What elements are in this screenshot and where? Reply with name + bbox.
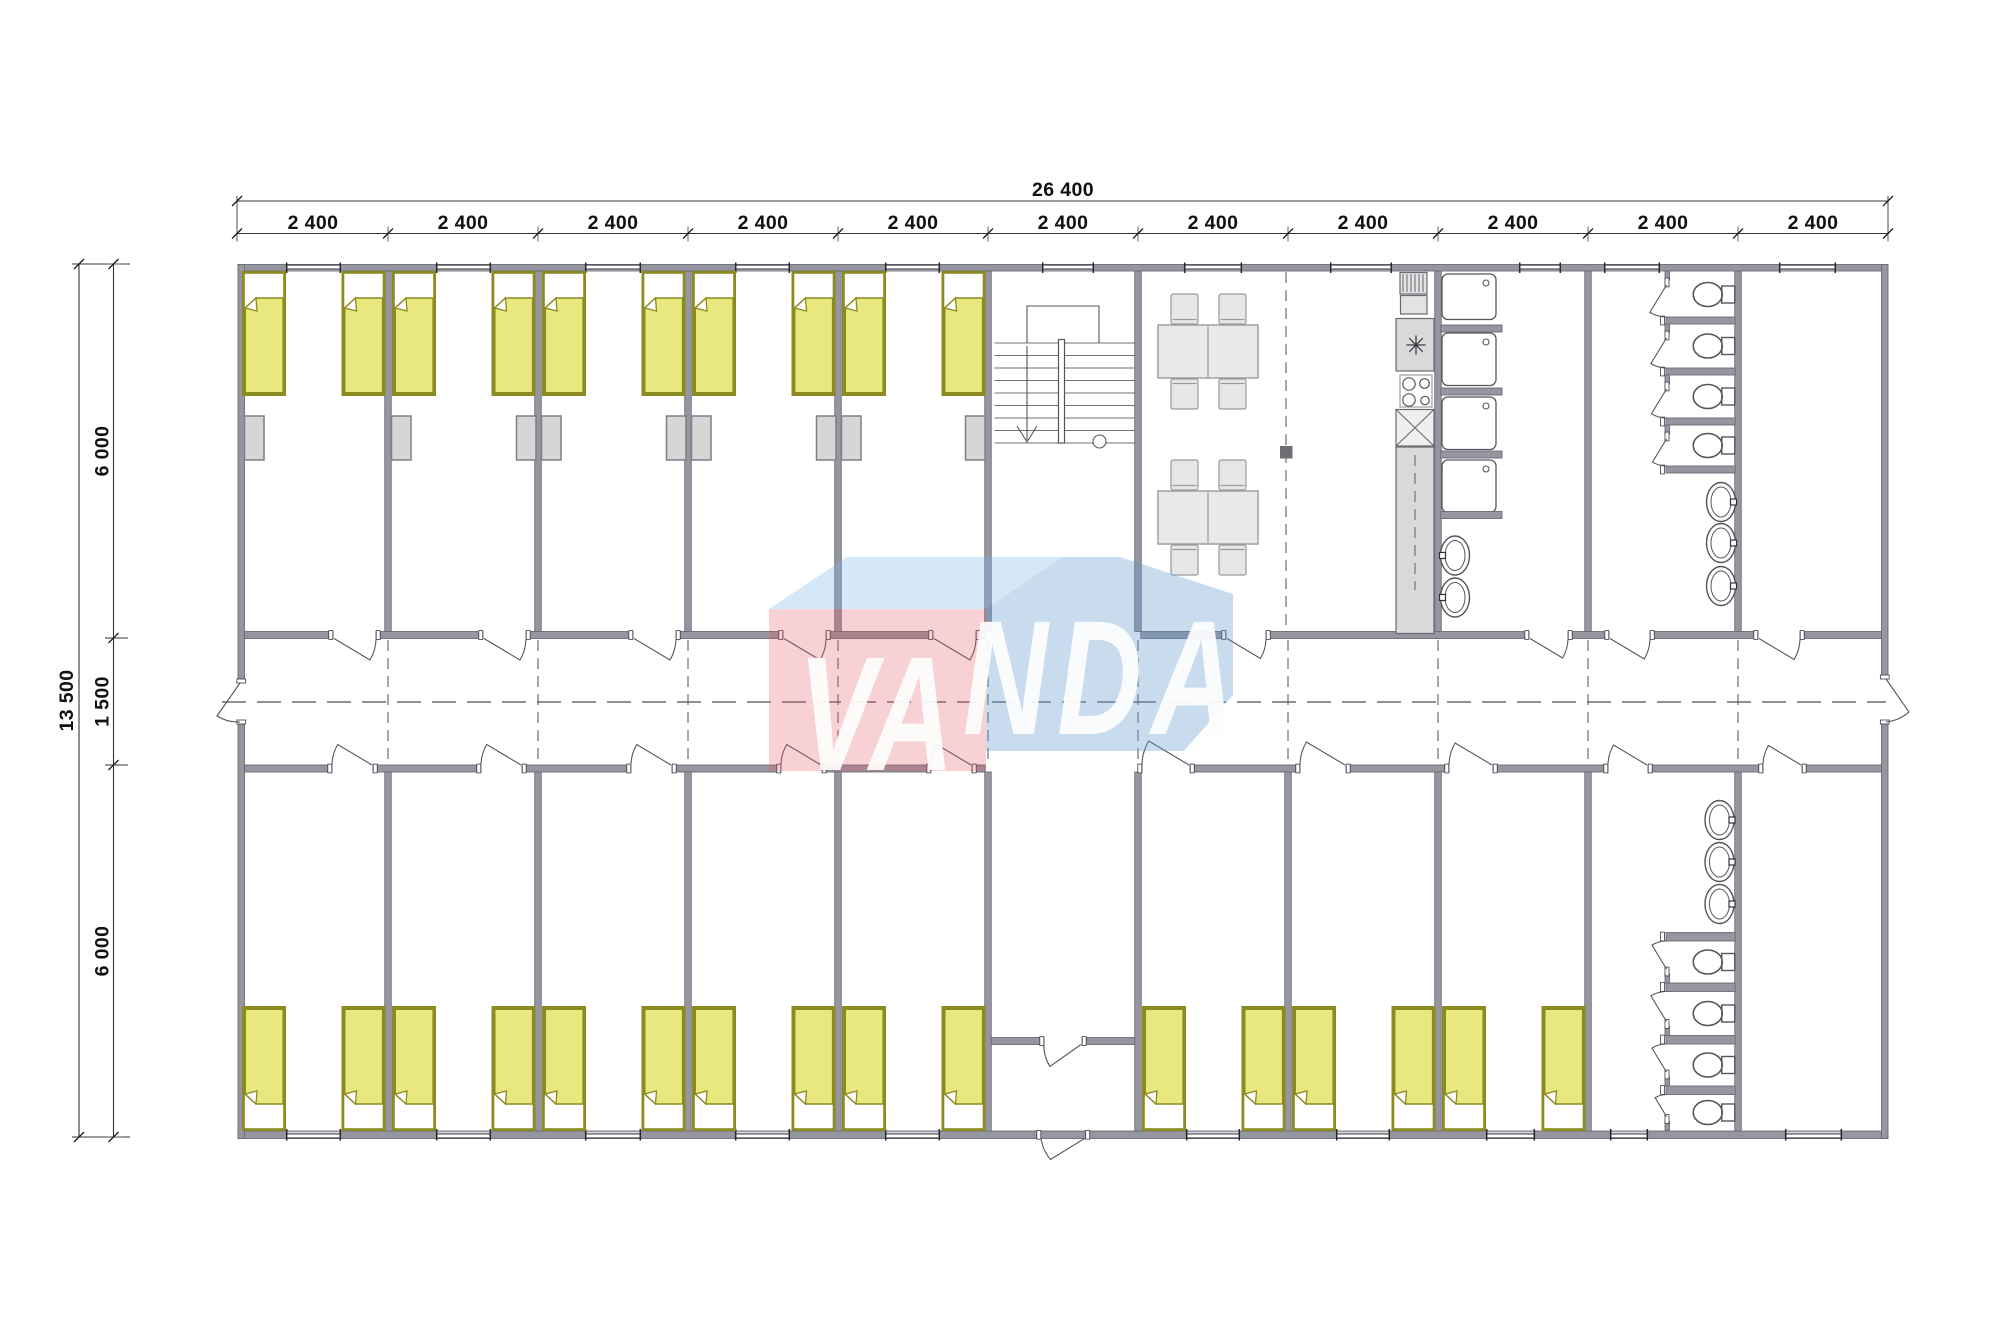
- svg-text:2 400: 2 400: [1188, 212, 1239, 234]
- svg-text:2 400: 2 400: [1788, 212, 1839, 234]
- svg-text:2 400: 2 400: [738, 212, 789, 234]
- svg-text:2 400: 2 400: [1488, 212, 1539, 234]
- svg-text:2 400: 2 400: [588, 212, 639, 234]
- svg-text:2 400: 2 400: [438, 212, 489, 234]
- svg-text:2 400: 2 400: [1038, 212, 1089, 234]
- svg-text:2 400: 2 400: [288, 212, 339, 234]
- svg-text:NDA: NDA: [963, 587, 1245, 769]
- svg-text:2 400: 2 400: [1638, 212, 1689, 234]
- svg-text:VA: VA: [798, 623, 955, 805]
- svg-text:2 400: 2 400: [888, 212, 939, 234]
- svg-text:13 500: 13 500: [56, 669, 78, 731]
- svg-text:1 500: 1 500: [92, 676, 114, 727]
- svg-text:6 000: 6 000: [92, 926, 114, 977]
- svg-text:2 400: 2 400: [1338, 212, 1389, 234]
- svg-text:26 400: 26 400: [1032, 179, 1094, 201]
- svg-text:6 000: 6 000: [92, 426, 114, 477]
